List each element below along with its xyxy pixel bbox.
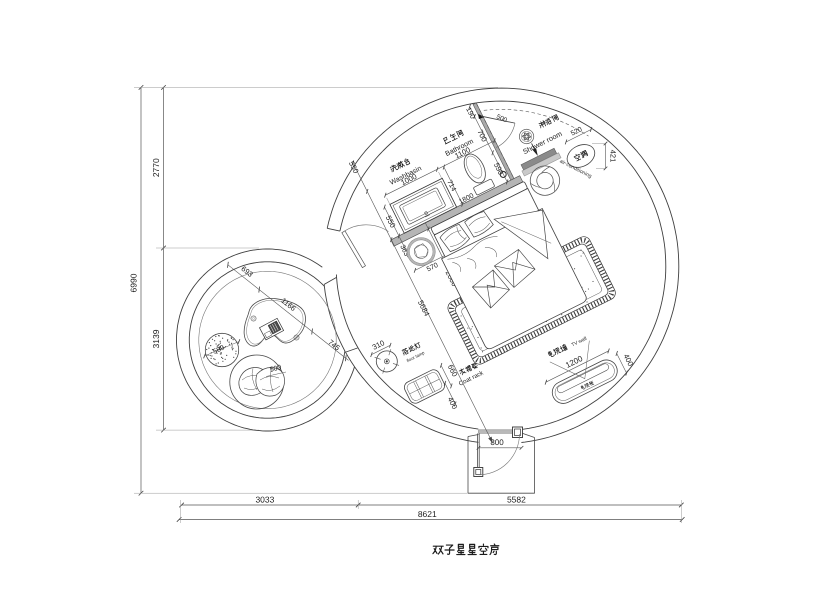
svg-text:2770: 2770 xyxy=(151,158,161,177)
svg-text:8621: 8621 xyxy=(418,509,437,519)
svg-text:3139: 3139 xyxy=(151,329,161,348)
svg-text:3033: 3033 xyxy=(255,494,274,504)
svg-text:5582: 5582 xyxy=(507,494,526,504)
svg-text:6990: 6990 xyxy=(129,273,139,292)
svg-text:421: 421 xyxy=(609,150,618,163)
